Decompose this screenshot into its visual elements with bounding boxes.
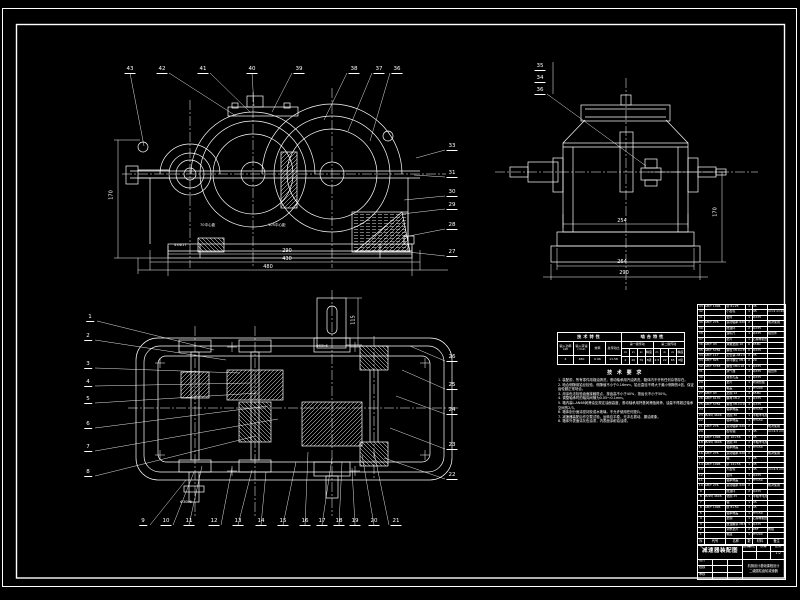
part-qty: 1 xyxy=(746,332,753,336)
dimension-label: 170 xyxy=(714,207,719,217)
part-note xyxy=(768,414,785,418)
part-name: 垫圈 xyxy=(726,517,746,521)
part-qty: 1 xyxy=(746,408,753,412)
part-note xyxy=(768,436,785,440)
callout-balloon: 6 xyxy=(84,421,92,429)
part-code xyxy=(705,446,727,450)
part-qty: 1 xyxy=(746,479,753,483)
part-code: JB/ZQ 4606 xyxy=(705,414,727,418)
part-note xyxy=(768,343,785,347)
part-no: 2 xyxy=(698,528,705,532)
part-material: 半粗羊毛毡 xyxy=(753,441,768,445)
part-name: 箱盖 xyxy=(726,387,746,391)
tech-requirements-title: 技 术 要 求 xyxy=(580,369,670,376)
part-material: Q235 xyxy=(753,327,768,331)
part-material: HT150 xyxy=(753,446,768,450)
spec-val: 0.96 xyxy=(590,356,606,364)
callout-balloon: 11 xyxy=(184,518,195,526)
part-no: 32 xyxy=(698,365,705,369)
spec-val: 4 xyxy=(558,356,574,364)
part-material: Q235 xyxy=(753,523,768,527)
part-name: 挡油环 xyxy=(726,490,746,494)
callout-balloon: 43 xyxy=(125,66,136,74)
part-no: 28 xyxy=(698,387,705,391)
part-code xyxy=(705,338,727,342)
part-no: 7 xyxy=(698,501,705,505)
part-note xyxy=(768,305,785,309)
spec-val: 11.58 xyxy=(606,356,621,364)
part-qty: 2 xyxy=(746,327,753,331)
callout-balloon: 25 xyxy=(447,382,458,390)
part-code: GB/T 276 xyxy=(705,484,727,488)
callout-balloon: 2 xyxy=(84,333,92,341)
part-name: 轴承端盖 xyxy=(726,419,746,423)
part-name: 窥视孔盖 xyxy=(726,376,746,380)
spec-col: m xyxy=(622,349,630,356)
part-name: 轴承端盖 xyxy=(726,446,746,450)
spec-col: 精度 xyxy=(646,349,654,356)
part-no: 36 xyxy=(698,343,705,347)
dimension-label: 170 xyxy=(110,190,115,200)
spec-left-header: 技术特性 xyxy=(558,333,621,342)
part-name: 毡圈 40 xyxy=(726,441,746,445)
part-material: 石棉橡胶纸 xyxy=(753,338,768,342)
part-name: 键 14×56 xyxy=(726,463,746,467)
part-name: 通气器 xyxy=(726,370,746,374)
part-no: 40 xyxy=(698,321,705,325)
callout-balloon: 22 xyxy=(447,472,458,480)
part-note xyxy=(768,316,785,320)
title-block: 减速器装配图 图样标记 质量 比例 1:2 设计 校核 xyxy=(697,544,786,580)
spec-table: 技术特性 输入功率 kW 输入转速 r/min 效率 总传动比 4 480 0.… xyxy=(557,332,685,365)
callout-balloon: 10 xyxy=(161,518,172,526)
part-code: GB/T 1096 xyxy=(705,436,727,440)
part-code: GB/T 276 xyxy=(705,321,727,325)
part-name: 大齿轮 xyxy=(726,468,746,472)
part-code: GB/T 1096 xyxy=(705,463,727,467)
part-qty: 1 xyxy=(746,468,753,472)
part-note xyxy=(768,354,785,358)
part-qty: 1 xyxy=(746,310,753,314)
callout-balloon: 21 xyxy=(391,518,402,526)
part-note: m=2.5 z=65 xyxy=(768,468,785,472)
signature-row: 审核 xyxy=(698,573,742,579)
part-no: 33 xyxy=(698,359,705,363)
part-note xyxy=(768,349,785,353)
side-top-cover xyxy=(581,95,670,121)
part-qty: 1 xyxy=(746,523,753,527)
callout-balloon: 7 xyxy=(84,444,92,452)
part-no: 5 xyxy=(698,512,705,516)
part-name: 毡圈 30 xyxy=(726,414,746,418)
part-material: 半粗羊毛毡 xyxy=(753,495,768,499)
spec-val: 2.5 xyxy=(654,357,662,364)
part-note: 组合件 xyxy=(768,332,785,336)
part-material: 45 xyxy=(753,501,768,505)
part-note xyxy=(768,463,785,467)
spec-val: 65 xyxy=(669,357,677,364)
part-name: 螺母 M12 xyxy=(726,397,746,401)
part-material: Q235 xyxy=(753,316,768,320)
callout-balloon: 20 xyxy=(369,518,380,526)
sheet-border xyxy=(3,9,797,587)
tech-requirement-line: 8. 箱体外表面涂灰色油漆，内表面涂耐油油漆。 xyxy=(558,419,696,424)
part-note xyxy=(768,495,785,499)
part-note xyxy=(768,327,785,331)
part-name: 套筒 xyxy=(726,316,746,320)
callout-balloon: 35 xyxy=(535,63,546,71)
plan-housing-outer xyxy=(136,338,452,480)
part-no: 23 xyxy=(698,414,705,418)
part-no: 43 xyxy=(698,305,705,309)
spec-val: 20 xyxy=(630,357,638,364)
part-no: 6 xyxy=(698,506,705,510)
part-code: GB/T 825 xyxy=(705,359,727,363)
part-name: 滚动轴承 6205 xyxy=(726,321,746,325)
signature-row: 校核 xyxy=(698,566,742,573)
side-slants xyxy=(563,120,688,143)
callout-balloon: 23 xyxy=(447,442,458,450)
spec-stage2: 第二级传动 xyxy=(654,342,685,349)
callout-balloon: 27 xyxy=(447,249,458,257)
part-no: 39 xyxy=(698,327,705,331)
callout-balloon: 37 xyxy=(374,66,385,74)
callout-balloon: 24 xyxy=(447,407,458,415)
split-flange xyxy=(130,171,420,178)
dimension-label: 115 xyxy=(352,315,357,325)
callout-balloon: 9 xyxy=(139,518,147,526)
gear-mesh-band xyxy=(281,152,297,208)
callout-balloon: 15 xyxy=(278,518,289,526)
part-note xyxy=(768,479,785,483)
part-qty: 1 xyxy=(746,441,753,445)
part-name: 轴承端盖 xyxy=(726,408,746,412)
part-name: 垫圈 12 xyxy=(726,392,746,396)
part-note: m=2.5 z=22 xyxy=(768,430,785,434)
part-no: 8 xyxy=(698,495,705,499)
part-qty: 1 xyxy=(746,495,753,499)
part-note xyxy=(768,506,785,510)
callout-balloon: 3 xyxy=(84,361,92,369)
part-note xyxy=(768,403,785,407)
part-material: 65Mn xyxy=(753,343,768,347)
annotation-text: 70中心距 xyxy=(200,223,215,227)
part-qty: 2 xyxy=(746,354,753,358)
part-material: Q235 xyxy=(753,403,768,407)
part-note xyxy=(768,441,785,445)
part-no: 25 xyxy=(698,403,705,407)
part-qty: 1 xyxy=(746,517,753,521)
part-code: GB/T 117 xyxy=(705,354,727,358)
part-no: 10 xyxy=(698,484,705,488)
part-note: 成对使用 xyxy=(768,452,785,456)
part-qty: 1 xyxy=(746,474,753,478)
part-material: HT150 xyxy=(753,408,768,412)
part-qty: 2 xyxy=(746,452,753,456)
part-qty: 1 xyxy=(746,387,753,391)
spec-val: 480 xyxy=(574,356,590,364)
dimension-label: 254 xyxy=(617,219,627,224)
dimension-label: 264 xyxy=(617,260,627,265)
part-name: 弹簧垫圈 10 xyxy=(726,343,746,347)
part-qty: 1 xyxy=(746,463,753,467)
part-material xyxy=(753,484,768,488)
part-no: 9 xyxy=(698,490,705,494)
callout-balloon: 8 xyxy=(84,469,92,477)
callout-balloon: 33 xyxy=(447,143,458,151)
part-material: 石棉橡胶纸 xyxy=(753,517,768,521)
part-no: 11 xyxy=(698,479,705,483)
part-note: m=2 z=20 xyxy=(768,310,785,314)
part-material: Q235 xyxy=(753,376,768,380)
callout-balloon: 12 xyxy=(209,518,220,526)
annotation-text: Φ55k6 xyxy=(316,344,328,348)
part-name: 油标尺 xyxy=(726,332,746,336)
annotation-text: 4×Φ17 xyxy=(174,243,187,247)
part-code xyxy=(705,370,727,374)
part-note xyxy=(768,457,785,461)
part-note xyxy=(768,408,785,412)
callout-balloon: 29 xyxy=(447,202,458,210)
part-name: 套筒 xyxy=(726,474,746,478)
spec-col: 输入功率 kW xyxy=(558,342,574,356)
drawing-title: 减速器装配图 xyxy=(698,545,743,560)
part-code: GB/T 276 xyxy=(705,425,727,429)
part-no: 41 xyxy=(698,316,705,320)
part-material: Q235 xyxy=(753,349,768,353)
callout-balloon: 16 xyxy=(300,518,311,526)
callout-balloon: 26 xyxy=(447,354,458,362)
part-material: HT150 xyxy=(753,512,768,516)
callout-balloon: 4 xyxy=(84,379,92,387)
part-no: 27 xyxy=(698,392,705,396)
part-name: 螺栓 M6×16 xyxy=(726,365,746,369)
part-code xyxy=(705,316,727,320)
part-note: 成对使用 xyxy=(768,321,785,325)
part-name: 轴承端盖 xyxy=(726,479,746,483)
part-code xyxy=(705,408,727,412)
spec-col: m xyxy=(654,349,662,356)
spec-val: 79 xyxy=(638,357,646,364)
part-no: 37 xyxy=(698,338,705,342)
part-code xyxy=(705,387,727,391)
part-name: 键 6×25 xyxy=(726,305,746,309)
part-code: GB/T 5783 xyxy=(705,365,727,369)
callout-balloon: 41 xyxy=(198,66,209,74)
part-code xyxy=(705,517,727,521)
spec-val: 8级 xyxy=(646,357,654,364)
part-no: 4 xyxy=(698,517,705,521)
tech-requirements-list: 1. 装配前，所有零件用煤油清洗，滚动轴承用汽油清洗，箱体内不许有任何杂物存在。… xyxy=(558,378,696,424)
part-name: 齿轮轴 xyxy=(726,430,746,434)
part-code: GB/T 1096 xyxy=(705,506,727,510)
part-note xyxy=(768,490,785,494)
part-code xyxy=(705,381,727,385)
part-material: 45 xyxy=(753,468,768,472)
title-block-signatures: 设计 校核 审核 xyxy=(698,559,743,579)
part-no: 3 xyxy=(698,523,705,527)
part-qty: 4 xyxy=(746,365,753,369)
course-subject: 二级圆柱齿轮减速器 xyxy=(742,570,785,574)
part-no: 35 xyxy=(698,349,705,353)
title-block-grid: 图样标记 质量 比例 1:2 xyxy=(742,545,785,560)
part-code xyxy=(705,332,727,336)
spec-val: 22 xyxy=(661,357,669,364)
part-material: Q235 xyxy=(753,370,768,374)
part-no: 22 xyxy=(698,419,705,423)
spec-left: 技术特性 输入功率 kW 输入转速 r/min 效率 总传动比 4 480 0.… xyxy=(558,333,622,364)
part-no: 42 xyxy=(698,310,705,314)
part-code xyxy=(705,327,727,331)
callout-balloon: 5 xyxy=(84,396,92,404)
plan-housing-inner xyxy=(144,346,444,472)
part-no: 12 xyxy=(698,474,705,478)
part-note xyxy=(768,523,785,527)
part-code xyxy=(705,376,727,380)
part-qty: 1 xyxy=(746,370,753,374)
part-note xyxy=(768,474,785,478)
part-name: 垫片 xyxy=(726,381,746,385)
part-note xyxy=(768,397,785,401)
part-code: GB/T 5782 xyxy=(705,403,727,407)
part-name: 轴 xyxy=(726,457,746,461)
dimension-label: 290 xyxy=(619,271,629,276)
part-qty: 1 xyxy=(746,436,753,440)
part-qty: 1 xyxy=(746,457,753,461)
part-qty: 1 xyxy=(746,430,753,434)
tech-requirement-line: 5. 箱内装L-AN68润滑油至规定油面高度，滚动轴承用钙基润滑脂润滑，油量不得… xyxy=(558,401,696,410)
part-material: 45 xyxy=(753,430,768,434)
course-name: 机械设计基础课程设计 xyxy=(742,565,785,569)
callout-balloon: 13 xyxy=(233,518,244,526)
part-name: 轴承端盖 xyxy=(726,512,746,516)
part-note xyxy=(768,419,785,423)
tech-requirements: 技 术 要 求 1. 装配前，所有零件用煤油清洗，滚动轴承用汽油清洗，箱体内不许… xyxy=(558,369,696,424)
part-name: 毡圈 25 xyxy=(726,495,746,499)
front-view xyxy=(114,88,448,276)
part-qty: 1 xyxy=(746,381,753,385)
part-no: 18 xyxy=(698,441,705,445)
spec-col: 总传动比 xyxy=(606,342,621,356)
part-name: 键 8×50 xyxy=(726,506,746,510)
part-qty: 1 xyxy=(746,376,753,380)
dimension-label: 480 xyxy=(263,265,273,270)
part-qty: 2 xyxy=(746,528,753,532)
part-material: Q235 xyxy=(753,474,768,478)
oil-hatch-region xyxy=(198,212,414,252)
part-code xyxy=(705,528,727,532)
part-material: 65Mn xyxy=(753,392,768,396)
part-note: 组合件 xyxy=(768,370,785,374)
ear-hole-left xyxy=(138,142,148,152)
part-no: 29 xyxy=(698,381,705,385)
part-no: 14 xyxy=(698,463,705,467)
part-name: 螺栓 M10×35 xyxy=(726,349,746,353)
side-dim-lines xyxy=(543,172,726,280)
spec-col: 输入转速 r/min xyxy=(574,342,590,356)
part-material: HT200 xyxy=(753,387,768,391)
part-name: 轴 xyxy=(726,501,746,505)
part-no: 30 xyxy=(698,376,705,380)
part-qty: 6 xyxy=(746,343,753,347)
part-name: 小齿轮 xyxy=(726,310,746,314)
part-material: 45 xyxy=(753,457,768,461)
part-code xyxy=(705,457,727,461)
part-qty: 1 xyxy=(746,305,753,309)
part-note xyxy=(768,338,785,342)
part-code: JB/ZQ 4606 xyxy=(705,495,727,499)
part-note xyxy=(768,359,785,363)
part-material: 软钢纸板 xyxy=(753,381,768,385)
part-no: 34 xyxy=(698,354,705,358)
part-material: 45 xyxy=(753,310,768,314)
spec-stage1: 第一级传动 xyxy=(622,342,654,349)
part-no: 15 xyxy=(698,457,705,461)
part-note xyxy=(768,501,785,505)
part-qty: 4 xyxy=(746,397,753,401)
part-name: 定位销 A8×30 xyxy=(726,354,746,358)
part-qty: 1 xyxy=(746,506,753,510)
part-code: JB/ZQ 4606 xyxy=(705,441,727,445)
part-no: 24 xyxy=(698,408,705,412)
tech-requirement-line: 2. 啮合侧隙用铅丝检验，侧隙值不小于0.16mm，铅丝直径不得大于最小侧隙的4… xyxy=(558,383,696,392)
title-block-course: 机械设计基础课程设计 二级圆柱齿轮减速器 xyxy=(742,559,785,579)
callout-balloon: 40 xyxy=(247,66,258,74)
part-no: 26 xyxy=(698,397,705,401)
part-name: 螺栓 M12×100 xyxy=(726,403,746,407)
dimension-label: 430 xyxy=(282,257,292,262)
part-note xyxy=(768,392,785,396)
callout-balloon: 31 xyxy=(447,170,458,178)
part-material: HT150 xyxy=(753,479,768,483)
part-no: 20 xyxy=(698,430,705,434)
part-name: 滚动轴承 6206 xyxy=(726,484,746,488)
part-name: 滚动轴承 6207 xyxy=(726,425,746,429)
part-code xyxy=(705,468,727,472)
parts-list: 43 GB/T 1096 键 6×25 1 45 42 小齿轮 1 45 m=2… xyxy=(697,304,786,539)
part-qty: 2 xyxy=(746,425,753,429)
callout-balloon: 38 xyxy=(349,66,360,74)
part-material: Q235 xyxy=(753,490,768,494)
part-material: 35 xyxy=(753,354,768,358)
signature-row: 设计 xyxy=(698,559,742,566)
callout-balloon: 42 xyxy=(157,66,168,74)
plan-view xyxy=(128,290,460,516)
plan-centerlines xyxy=(128,290,460,516)
part-no: 38 xyxy=(698,332,705,336)
part-qty: 1 xyxy=(746,501,753,505)
part-qty: 1 xyxy=(746,446,753,450)
part-material: Q235 xyxy=(753,365,768,369)
side-base-upper xyxy=(557,232,694,246)
part-qty: 2 xyxy=(746,359,753,363)
callout-balloon: 39 xyxy=(294,66,305,74)
part-note xyxy=(768,376,785,380)
part-qty: 1 xyxy=(746,414,753,418)
part-material: 45 xyxy=(753,506,768,510)
tech-requirement-line: 1. 装配前，所有零件用煤油清洗，滚动轴承用汽油清洗，箱体内不许有任何杂物存在。 xyxy=(558,378,696,383)
part-qty: 1 xyxy=(746,512,753,516)
callout-balloon: 36 xyxy=(535,87,546,95)
part-material: 45 xyxy=(753,305,768,309)
part-material xyxy=(753,321,768,325)
part-qty: 2 xyxy=(746,321,753,325)
spec-col: z₁ xyxy=(661,349,669,356)
part-code: GB/T 276 xyxy=(705,452,727,456)
part-name: 挡油环 xyxy=(726,327,746,331)
bearing-boss-right xyxy=(688,158,698,192)
part-code xyxy=(705,512,727,516)
